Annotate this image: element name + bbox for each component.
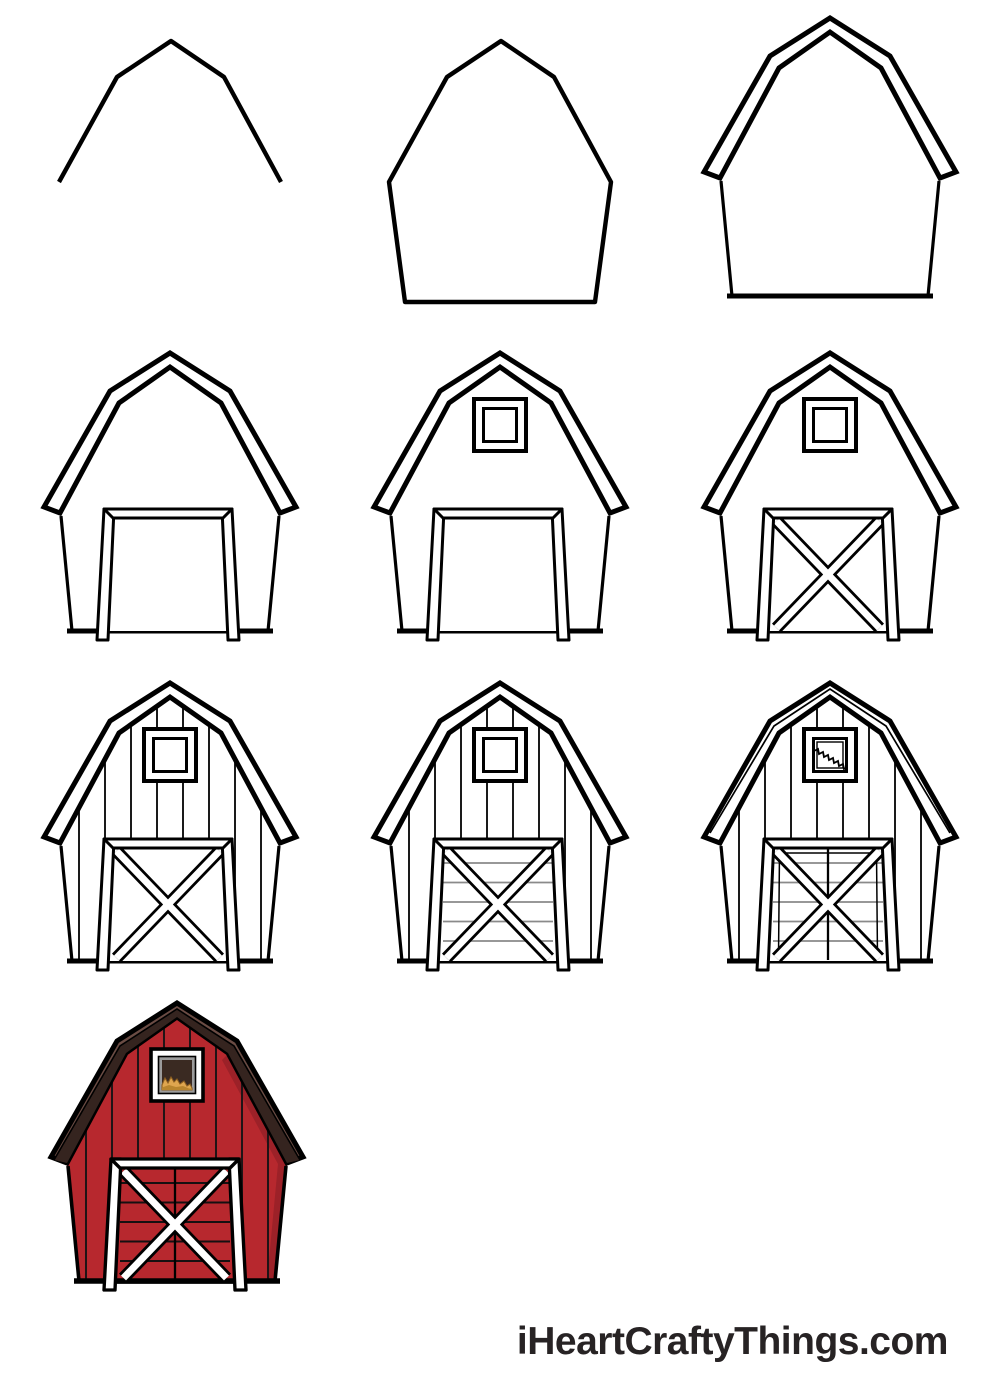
- barn-step-1-svg: [0, 0, 330, 335]
- barn-step-1: [0, 0, 330, 335]
- barn-step-5-svg: [330, 335, 660, 670]
- barn-step-10-svg: [7, 985, 337, 1320]
- barn-step-3: [660, 0, 990, 335]
- barn-step-6: [660, 335, 990, 670]
- barn-step-6-svg: [660, 335, 990, 670]
- barn-step-8-svg: [330, 665, 660, 1000]
- barn-step-9: [660, 665, 990, 1000]
- barn-step-2: [330, 0, 660, 335]
- barn-step-3-svg: [660, 0, 990, 335]
- watermark: iHeartCraftyThings.com: [517, 1320, 948, 1364]
- barn-step-4: [0, 335, 330, 670]
- barn-step-10-colored: [7, 985, 337, 1320]
- barn-step-7-svg: [0, 665, 330, 1000]
- barn-step-5: [330, 335, 660, 670]
- barn-step-4-svg: [0, 335, 330, 670]
- barn-step-9-svg: [660, 665, 990, 1000]
- barn-step-8: [330, 665, 660, 1000]
- tutorial-page: iHeartCraftyThings.com: [0, 0, 1000, 1400]
- barn-step-7: [0, 665, 330, 1000]
- barn-step-2-svg: [330, 0, 660, 335]
